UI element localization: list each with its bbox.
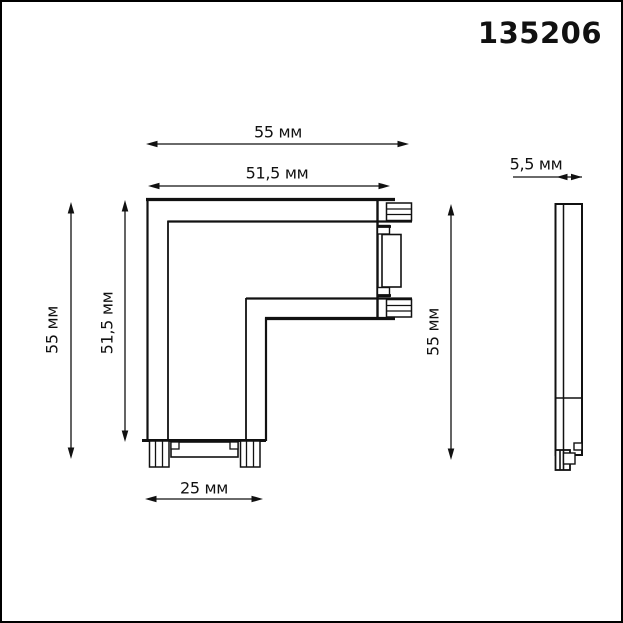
dim-line-top-outer-55 [146, 141, 409, 148]
dimension-drawing [2, 2, 623, 623]
bottom-prong-left [150, 441, 170, 467]
arrowhead-right [379, 183, 391, 190]
dim-label-top-inner: 51,5 мм [246, 164, 309, 183]
dim-label-top-outer: 55 мм [254, 123, 302, 142]
right-contact-block [382, 235, 401, 288]
dim-line-top-inner-51-5 [148, 183, 390, 190]
arrowhead-right [252, 496, 264, 503]
bottom-block-notch-right [230, 442, 238, 449]
bottom-block-notch-left [171, 442, 179, 449]
dim-line-left-inner-51-5 [122, 200, 129, 442]
arrowhead-right [398, 141, 410, 148]
dim-line-right-55 [448, 204, 455, 460]
arrowhead-up [68, 202, 75, 214]
arrowhead-left [557, 174, 568, 180]
right-prong-top [387, 203, 412, 221]
arrowhead-down [68, 448, 75, 460]
technical-drawing-page: 135206 [0, 0, 623, 623]
side-body [556, 204, 583, 455]
dim-label-right-height: 55 мм [424, 308, 443, 356]
bottom-contact-block [171, 442, 238, 457]
arrowhead-up [448, 204, 455, 216]
side-view [556, 204, 583, 470]
dim-label-left-height: 55 мм [43, 306, 62, 354]
arrowhead-left [145, 496, 157, 503]
right-prong-bottom [387, 300, 412, 318]
right-connector [377, 203, 412, 317]
dim-label-left-inner-height: 51,5 мм [98, 292, 117, 355]
dim-label-bottom-width: 25 мм [180, 479, 228, 498]
arrowhead-down [448, 449, 455, 461]
arrowhead-right [571, 174, 582, 180]
arrowhead-up [122, 200, 129, 212]
bottom-connector [150, 441, 261, 467]
dim-line-side-5-5 [513, 174, 582, 180]
dim-label-side-thickness: 5,5 мм [510, 155, 563, 174]
arrowhead-down [122, 431, 129, 443]
front-view-outline [142, 198, 412, 442]
side-foot-step [564, 453, 576, 464]
dim-line-left-55 [68, 202, 75, 459]
arrowhead-left [146, 141, 158, 148]
bottom-prong-right [241, 441, 261, 467]
arrowhead-left [148, 183, 160, 190]
side-notch [574, 443, 582, 450]
